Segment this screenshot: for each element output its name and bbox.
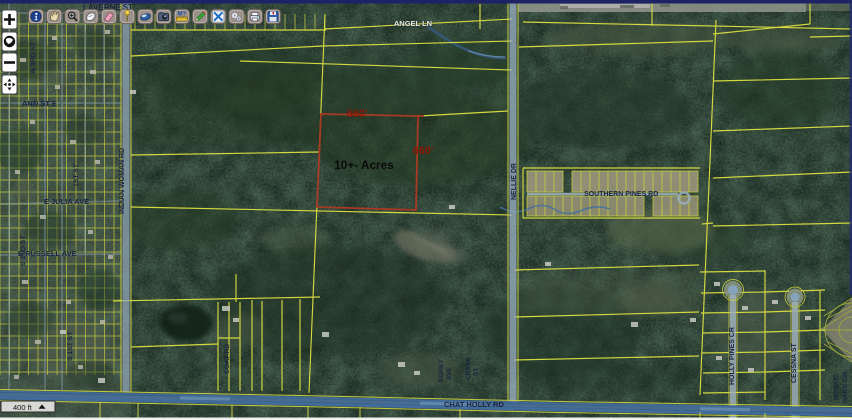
svg-text:OAKS CIR: OAKS CIR bbox=[842, 371, 849, 403]
svg-text:INDIAN WOMAN RD: INDIAN WOMAN RD bbox=[119, 148, 126, 214]
svg-text:S 2ND ST: S 2ND ST bbox=[20, 235, 27, 266]
svg-text:ST: ST bbox=[473, 368, 480, 376]
svg-text:AVE: AVE bbox=[446, 366, 453, 380]
svg-text:HOLLY PINES CR: HOLLY PINES CR bbox=[729, 327, 736, 385]
svg-text:CRANE: CRANE bbox=[465, 356, 472, 380]
svg-text:CESSNA ST: CESSNA ST bbox=[791, 342, 798, 383]
svg-text:EGRET: EGRET bbox=[438, 360, 445, 382]
svg-text:1ST ST: 1ST ST bbox=[73, 163, 80, 187]
svg-text:660': 660' bbox=[413, 145, 434, 157]
svg-text:S 1ST ST: S 1ST ST bbox=[67, 331, 74, 361]
svg-text:E JULIA AVE: E JULIA AVE bbox=[44, 197, 89, 206]
svg-text:400 ft: 400 ft bbox=[13, 403, 33, 412]
svg-text:MOSAIC: MOSAIC bbox=[833, 374, 840, 400]
svg-text:10+- Acres: 10+- Acres bbox=[334, 158, 394, 172]
svg-text:NELLIE DR: NELLIE DR bbox=[511, 163, 518, 200]
svg-text:CHAT HOLLY RD: CHAT HOLLY RD bbox=[444, 400, 504, 409]
svg-text:COAT RD: COAT RD bbox=[224, 343, 231, 374]
svg-text:M?: M? bbox=[177, 12, 186, 18]
svg-text:SOUTHERN PINES RD: SOUTHERN PINES RD bbox=[584, 191, 658, 198]
